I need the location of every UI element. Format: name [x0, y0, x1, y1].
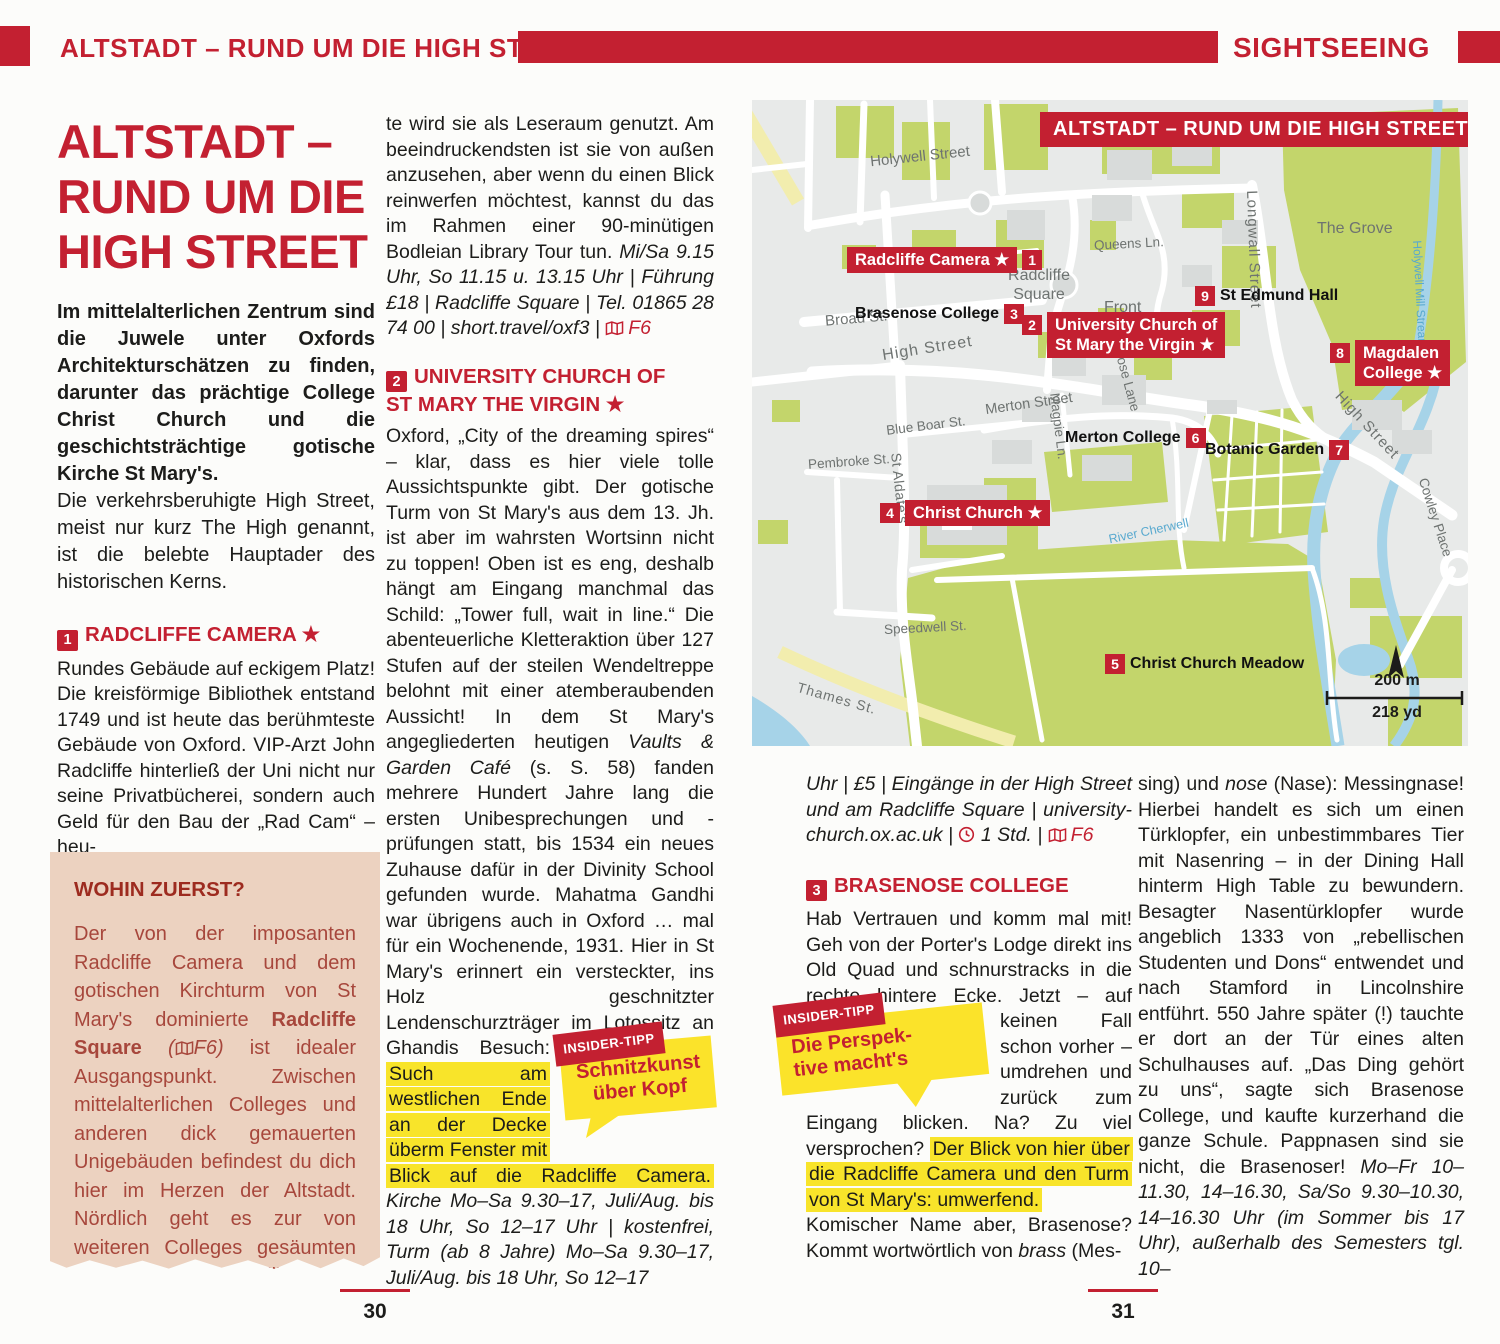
clock-icon [958, 826, 975, 843]
intro-bold: Im mittelalterlichen Zentrum sind die Ju… [57, 299, 375, 488]
map-icon [605, 321, 624, 336]
page-number-right: 31 [1088, 1300, 1158, 1324]
scale-imperial: 218 yd [1337, 704, 1457, 722]
header-rule-bar [518, 31, 1218, 63]
map-icon [1048, 828, 1067, 843]
map-sight-magdalen-college: 8 MagdalenCollege ★ [1330, 340, 1450, 386]
header-left-title: ALTSTADT – RUND UM DIE HIGH STREET [60, 33, 595, 64]
map-sight-christ-church-meadow: 5 Christ Church Meadow [1105, 653, 1304, 675]
star-icon: ★ [1200, 336, 1215, 354]
section-number-badge: 3 [806, 880, 827, 901]
street-label-the-grove: The Grove [1317, 220, 1393, 238]
speech-bubble-tail [896, 1079, 932, 1107]
section-brasenose-text-2: Komischer Name aber, Brasenose? Kommt wo… [806, 1213, 1132, 1264]
map-sight-radcliffe-camera: Radcliffe Camera ★ 1 [847, 247, 1042, 273]
guidebook-spread: ALTSTADT – RUND UM DIE HIGH STREET SIGHT… [0, 0, 1500, 1344]
paragraph-radcliffe-continued: te wird sie als Leseraum genutzt. Am bee… [386, 112, 714, 342]
section-number-badge: 1 [57, 630, 78, 651]
map-sight-st-edmund-hall: 9 St Edmund Hall [1195, 285, 1338, 307]
star-icon: ★ [994, 251, 1009, 269]
map-sight-university-church: 2 University Church ofSt Mary the Virgin… [1022, 312, 1225, 358]
star-icon: ★ [302, 623, 320, 646]
oxford-map: ALTSTADT – RUND UM DIE HIGH STREET Holyw… [752, 100, 1468, 746]
map-sight-merton-college: Merton College 6 [1065, 427, 1206, 449]
insider-tip-bubble-2: INSIDER-TIPPDie Perspek-tive macht's [778, 1013, 986, 1107]
map-sight-christ-church: 4 Christ Church ★ [880, 500, 1050, 526]
article-title: ALTSTADT – RUND UM DIE HIGH STREET [57, 114, 375, 279]
header-left-block [0, 26, 30, 66]
section-brasenose-text: Hab Vertrauen und komm mal mit! Geh von … [806, 907, 1132, 1213]
section-heading-brasenose: 3BRASENOSE COLLEGE [806, 873, 1132, 902]
brasenose-text-continued: sing) und nose (Nase): Messingnase! Hier… [1138, 772, 1464, 1282]
column-4: sing) und nose (Nase): Messingnase! Hier… [1138, 772, 1464, 1282]
section-radcliffe-text: Rundes Gebäude auf eckigem Platz! Die kr… [57, 657, 375, 861]
page-number-rule-right [1088, 1289, 1158, 1292]
star-icon: ★ [1427, 364, 1442, 382]
st-mary-info-continued: Uhr | £5 | Eingänge in der High Street u… [806, 772, 1132, 849]
star-icon: ★ [1028, 504, 1043, 522]
map-title: ALTSTADT – RUND UM DIE HIGH STREET [1040, 112, 1468, 147]
map-sight-brasenose: Brasenose College 3 [855, 303, 1024, 325]
wohin-box-title: WOHIN ZUERST? [74, 878, 356, 902]
header-right-title: SIGHTSEEING [1233, 32, 1430, 64]
column-2: te wird sie als Leseraum genutzt. Am bee… [386, 112, 714, 1291]
column-3: Uhr | £5 | Eingänge in der High Street u… [806, 772, 1132, 1264]
column-1: ALTSTADT – RUND UM DIE HIGH STREET Im mi… [57, 114, 375, 861]
star-icon: ★ [606, 393, 624, 416]
section-heading-st-mary: 2UNIVERSITY CHURCH OF ST MARY THE VIRGIN… [386, 364, 714, 419]
intro-regular: Die verkehrsberuhigte High Street, meist… [57, 488, 375, 596]
map-icon [175, 1041, 194, 1056]
insider-tip-bubble-1: INSIDER-TIPPSchnitzkunstüber Kopf [562, 1042, 714, 1138]
header-right-block [1458, 31, 1500, 63]
wohin-zuerst-box: WOHIN ZUERST? Der von der imposanten Rad… [50, 852, 380, 1272]
section-st-mary-text: Oxford, „City of the dreaming spires“ – … [386, 424, 714, 1291]
section-heading-radcliffe-camera: 1RADCLIFFE CAMERA ★ [57, 622, 375, 651]
page-number-left: 30 [340, 1300, 410, 1324]
scale-metric: 200 m [1337, 672, 1457, 690]
wohin-box-body: Der von der imposanten Radcliffe Camera … [74, 920, 356, 1319]
map-sight-botanic-garden: Botanic Garden 7 [1205, 439, 1349, 461]
section-number-badge: 2 [386, 371, 407, 392]
page-number-rule-left [340, 1289, 410, 1292]
